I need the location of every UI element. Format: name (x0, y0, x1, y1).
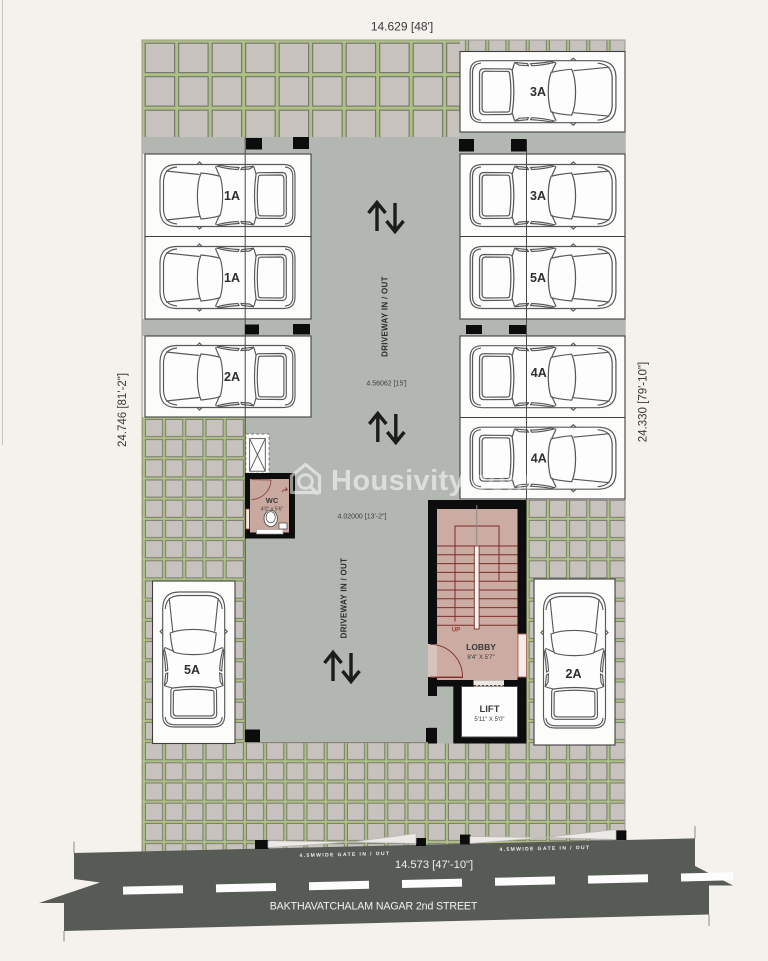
svg-text:1A: 1A (224, 189, 240, 203)
svg-text:24.330 [79'-10"]: 24.330 [79'-10"] (638, 362, 650, 442)
svg-text:5A: 5A (530, 271, 546, 285)
svg-text:2A: 2A (566, 667, 582, 681)
svg-text:3A: 3A (530, 189, 546, 203)
svg-text:1A: 1A (224, 271, 240, 285)
svg-text:LOBBY: LOBBY (466, 642, 496, 652)
svg-text:3A: 3A (530, 85, 546, 99)
svg-text:UP: UP (452, 628, 460, 634)
svg-text:4.02000 [13'-2"]: 4.02000 [13'-2"] (338, 513, 387, 520)
svg-text:BAKTHAVATCHALAM NAGAR 2nd STRE: BAKTHAVATCHALAM NAGAR 2nd STREET (270, 901, 478, 913)
svg-text:DRIVEWAY IN / OUT: DRIVEWAY IN / OUT (381, 276, 390, 357)
svg-text:WC: WC (266, 496, 279, 505)
svg-text:5'11" X 5'0": 5'11" X 5'0" (474, 717, 504, 723)
svg-text:4.56062 [15']: 4.56062 [15'] (366, 380, 406, 387)
svg-text:4'0" x 5'6": 4'0" x 5'6" (261, 507, 284, 513)
svg-text:5A: 5A (184, 663, 200, 677)
svg-text:DRIVEWAY IN / OUT: DRIVEWAY IN / OUT (340, 558, 349, 639)
svg-text:8'4" X 5'7": 8'4" X 5'7" (467, 655, 494, 661)
svg-text:24.746 [81'-2"]: 24.746 [81'-2"] (117, 373, 129, 447)
svg-text:LIFT: LIFT (479, 704, 499, 715)
svg-text:2A: 2A (224, 370, 240, 384)
svg-text:4A: 4A (531, 452, 547, 466)
svg-text:Housivity.com: Housivity.com (331, 465, 532, 497)
svg-text:14.629 [48']: 14.629 [48'] (371, 20, 433, 34)
svg-text:14.573 [47'-10"]: 14.573 [47'-10"] (395, 859, 473, 871)
svg-text:4A: 4A (531, 366, 547, 380)
